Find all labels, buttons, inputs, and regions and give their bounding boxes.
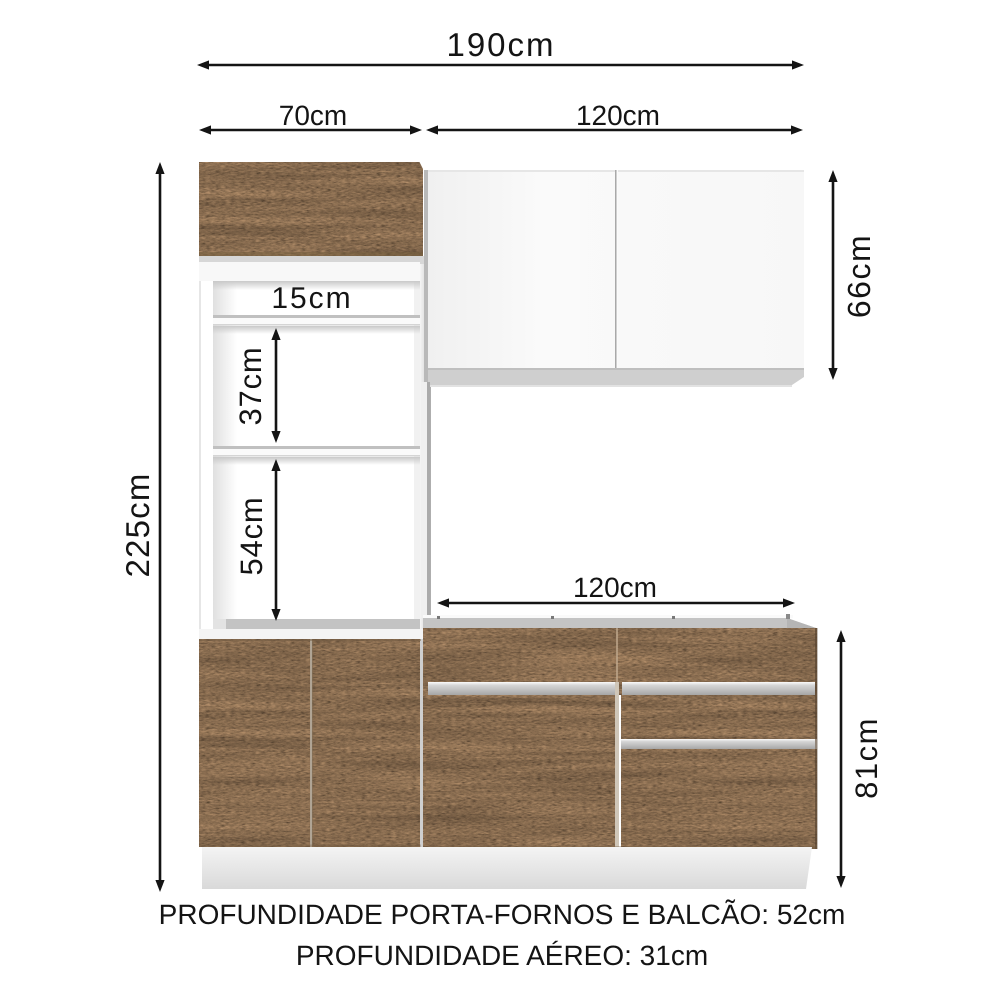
svg-text:37cm: 37cm (233, 346, 268, 425)
svg-text:15cm: 15cm (271, 282, 352, 315)
svg-text:70cm: 70cm (279, 100, 347, 131)
svg-text:81cm: 81cm (849, 717, 884, 799)
svg-text:120cm: 120cm (576, 100, 660, 131)
svg-text:PROFUNDIDADE PORTA-FORNOS E BA: PROFUNDIDADE PORTA-FORNOS E BALCÃO: 52cm (159, 899, 846, 930)
svg-text:225cm: 225cm (119, 472, 156, 577)
svg-text:190cm: 190cm (446, 26, 555, 63)
svg-text:120cm: 120cm (573, 572, 657, 603)
svg-text:54cm: 54cm (234, 496, 269, 575)
svg-text:66cm: 66cm (841, 234, 877, 318)
svg-text:PROFUNDIDADE AÉREO: 31cm: PROFUNDIDADE AÉREO: 31cm (296, 940, 708, 971)
